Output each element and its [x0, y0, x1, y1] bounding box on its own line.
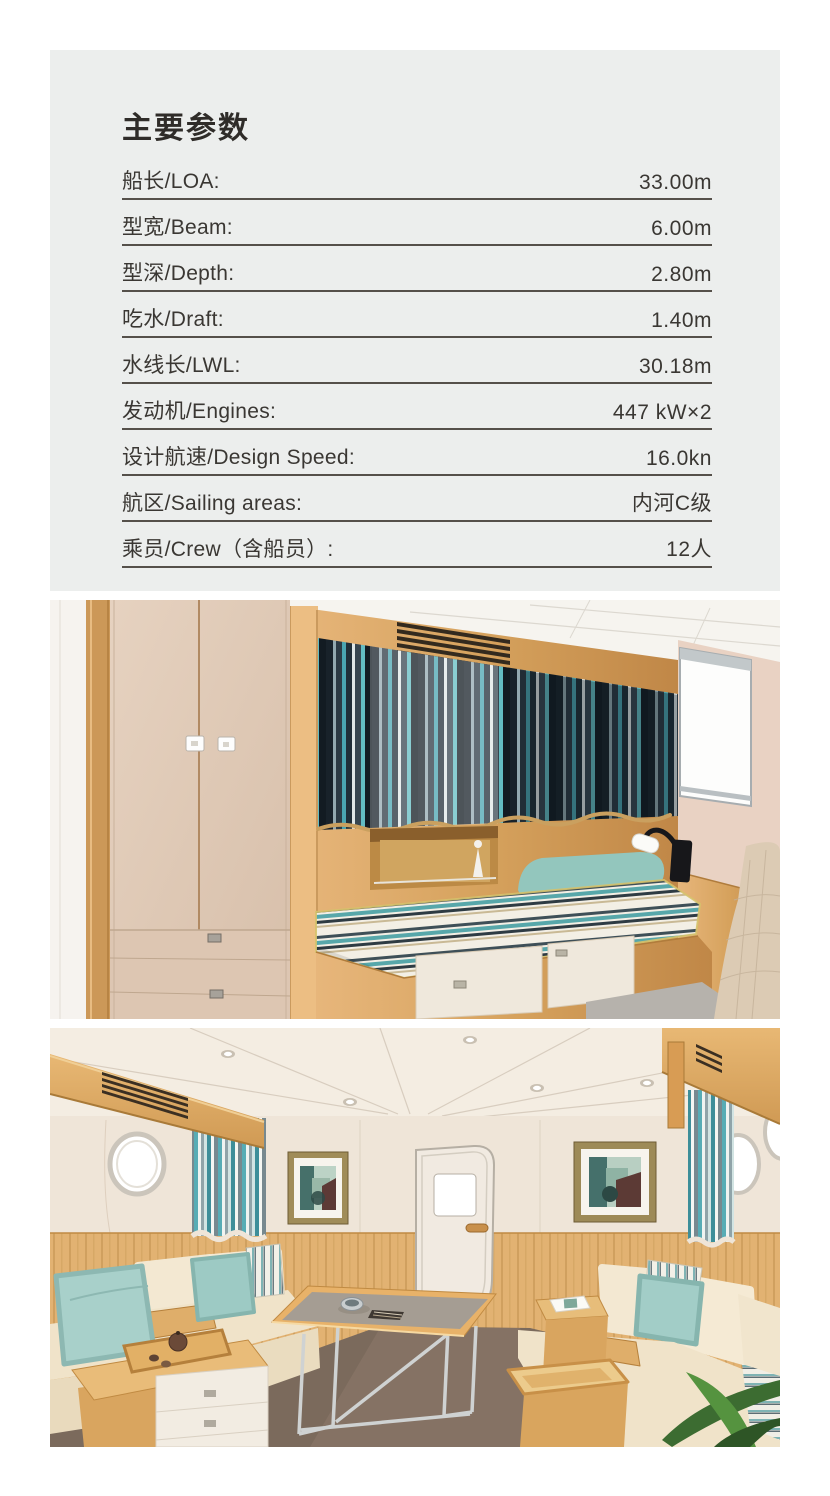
salon-photo	[50, 1028, 780, 1447]
cabin-window	[680, 648, 751, 806]
salon-render-scene	[50, 1028, 780, 1447]
door-window	[434, 1174, 476, 1216]
wardrobe	[110, 600, 290, 1019]
spec-label: 发动机/Engines:	[122, 395, 276, 425]
spec-label: 水线长/LWL:	[122, 349, 241, 379]
framed-art-left	[288, 1152, 348, 1224]
wall-niche	[370, 826, 498, 890]
spec-value: 6.00m	[651, 217, 712, 241]
bed-drawer	[416, 946, 542, 1019]
door-handle[interactable]	[466, 1224, 488, 1232]
spec-row-loa: 船长/LOA:33.00m	[122, 154, 712, 200]
drawer-handle	[210, 990, 223, 998]
spec-label: 乘员/Crew（含船员）:	[122, 533, 334, 563]
spec-value: 内河C级	[632, 487, 712, 517]
drawer-handle	[454, 981, 466, 988]
curtain-right	[688, 1090, 734, 1242]
drawer-handle	[556, 950, 567, 956]
spec-row-speed: 设计航速/Design Speed:16.0kn	[122, 430, 712, 476]
spec-value: 16.0kn	[646, 447, 712, 471]
drawer-handle	[208, 934, 221, 942]
cabin-photo	[50, 600, 780, 1019]
spec-row-depth: 型深/Depth:2.80m	[122, 246, 712, 292]
spec-title: 主要参数	[122, 112, 712, 146]
spec-label: 船长/LOA:	[122, 165, 220, 195]
spec-row-areas: 航区/Sailing areas:内河C级	[122, 476, 712, 522]
drawer-handle	[204, 1420, 216, 1427]
spec-card: 主要参数 船长/LOA:33.00m 型宽/Beam:6.00m 型深/Dept…	[50, 50, 780, 591]
spec-value: 2.80m	[651, 263, 712, 287]
spec-label: 型宽/Beam:	[122, 211, 233, 241]
teapot	[169, 1333, 187, 1351]
spec-value: 33.00m	[639, 171, 712, 195]
framed-art-right	[574, 1142, 656, 1222]
porthole-left	[110, 1134, 164, 1194]
spec-value: 447 kW×2	[613, 401, 712, 425]
wood-stool	[508, 1360, 628, 1447]
spec-value: 12人	[666, 533, 712, 563]
spec-label: 吃水/Draft:	[122, 303, 224, 333]
drawer-handle	[204, 1390, 216, 1397]
spec-value: 30.18m	[639, 355, 712, 379]
spec-table: 船长/LOA:33.00m 型宽/Beam:6.00m 型深/Depth:2.8…	[122, 154, 712, 568]
spec-row-draft: 吃水/Draft:1.40m	[122, 292, 712, 338]
spec-row-engines: 发动机/Engines:447 kW×2	[122, 384, 712, 430]
spec-value: 1.40m	[651, 309, 712, 333]
teal-pillow	[636, 1276, 702, 1344]
spec-label: 设计航速/Design Speed:	[122, 441, 355, 471]
cabin-left-wall	[50, 600, 110, 1019]
spec-row-beam: 型宽/Beam:6.00m	[122, 200, 712, 246]
door-frame-trim	[86, 600, 110, 1019]
spec-label: 型深/Depth:	[122, 257, 234, 287]
spec-row-crew: 乘员/Crew（含船员）:12人	[122, 522, 712, 568]
spec-label: 航区/Sailing areas:	[122, 487, 302, 517]
teal-pillow	[192, 1254, 254, 1320]
spec-row-lwl: 水线长/LWL:30.18m	[122, 338, 712, 384]
cabin-render-scene	[50, 600, 780, 1019]
